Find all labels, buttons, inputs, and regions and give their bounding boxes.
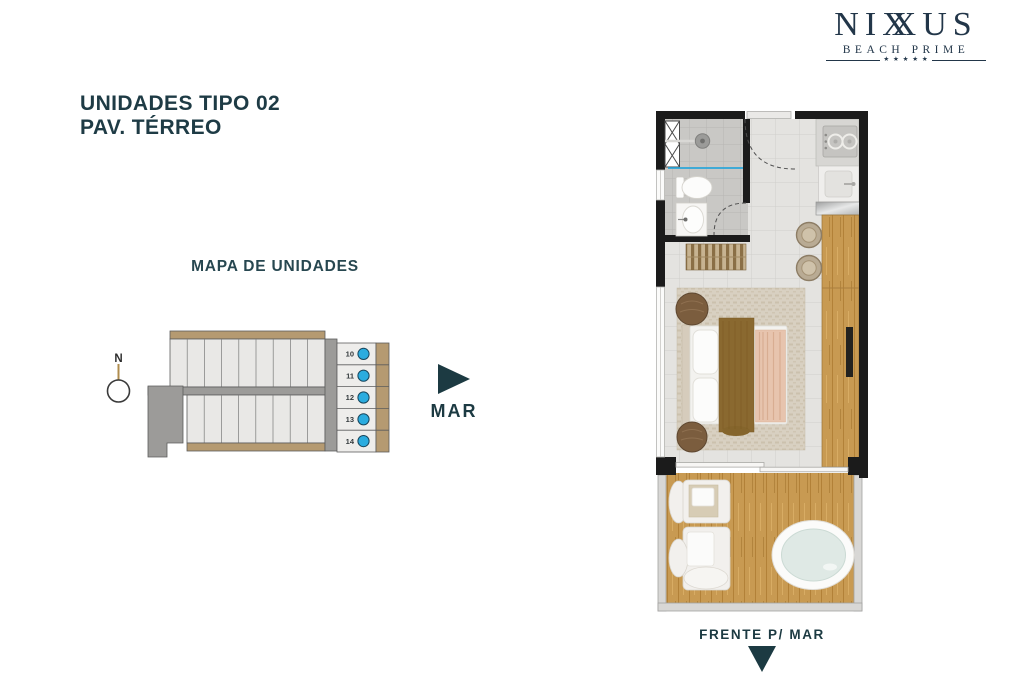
cooktop-icon [823, 126, 857, 157]
floor-plan [656, 111, 868, 623]
bed-throw [719, 318, 754, 436]
bed-headboard [682, 325, 690, 425]
stool-icon [797, 223, 822, 248]
wardrobe-handle [846, 327, 853, 377]
side-table-icon [677, 422, 707, 452]
unit-label: 11 [346, 371, 354, 380]
star-icons: ★ ★ ★ ★ ★ [883, 57, 928, 64]
unit-dot-icon [358, 436, 369, 447]
facade-strip-top [170, 331, 325, 339]
hot-tub-icon [772, 521, 854, 590]
unit-dot-icon [358, 348, 369, 359]
kitchen-sink-icon [819, 166, 860, 202]
rule-left [826, 60, 880, 61]
unit-dot-icon [358, 392, 369, 403]
sea-label: MAR [424, 401, 484, 422]
unit-label: 12 [346, 393, 354, 402]
page-title-line1: UNIDADES TIPO 02 [80, 92, 280, 116]
bar-counter-wardrobe [822, 215, 859, 467]
front-sea-indicator: FRENTE P/ MAR [646, 627, 878, 672]
unit-map-diagram: N [100, 320, 400, 465]
unit-label: 14 [346, 437, 355, 446]
brand-tagline: BEACH PRIME [820, 44, 992, 56]
window-bath [657, 170, 665, 200]
brand-stars-row: ★ ★ ★ ★ ★ [820, 57, 992, 64]
sea-arrow-icon [438, 364, 470, 394]
bed [682, 318, 787, 436]
unit-dot-icon [358, 414, 369, 425]
page-title: UNIDADES TIPO 02 PAV. TÉRREO [80, 92, 280, 139]
unit-dot-icon [358, 370, 369, 381]
bath-mat [686, 244, 746, 270]
sea-direction: MAR [424, 364, 484, 422]
bath-sink-icon [676, 203, 707, 236]
unit-row-top [170, 339, 325, 387]
brand-name-x2: X [892, 8, 923, 42]
compass-icon: N [108, 353, 130, 402]
page-title-line2: PAV. TÉRREO [80, 116, 280, 140]
facade-strip-right [376, 343, 389, 452]
stair-core [148, 386, 183, 457]
vent-shaft-icon [665, 121, 680, 167]
counter-metal-edge [816, 202, 862, 215]
rule-right [932, 60, 986, 61]
bed-blanket [756, 330, 786, 422]
facade-strip-bottom [187, 443, 325, 451]
corridor-right [325, 339, 337, 451]
brand-logo: NIXXUS BEACH PRIME ★ ★ ★ ★ ★ [820, 8, 992, 64]
unit-label: 10 [346, 350, 354, 359]
highlighted-units-block [337, 343, 376, 452]
compass-north-label: N [114, 353, 122, 365]
brand-name-prefix: NI [834, 6, 882, 43]
side-table-icon [676, 293, 708, 325]
armchair-icon [669, 480, 730, 523]
front-sea-arrow-icon [748, 646, 776, 672]
unit-label: 13 [346, 415, 354, 424]
brand-name: NIXXUS [820, 8, 992, 42]
unit-map-heading: MAPA DE UNIDADES [140, 258, 410, 276]
stool-icon [797, 256, 822, 281]
pillow [693, 378, 718, 422]
brand-name-suffix: US [922, 6, 977, 43]
pillow [693, 330, 718, 374]
toilet-icon [676, 177, 712, 199]
window-bedroom [657, 287, 665, 457]
front-sea-label: FRENTE P/ MAR [646, 627, 878, 642]
brochure-page: NIXXUS BEACH PRIME ★ ★ ★ ★ ★ UNIDADES TI… [0, 0, 1024, 682]
